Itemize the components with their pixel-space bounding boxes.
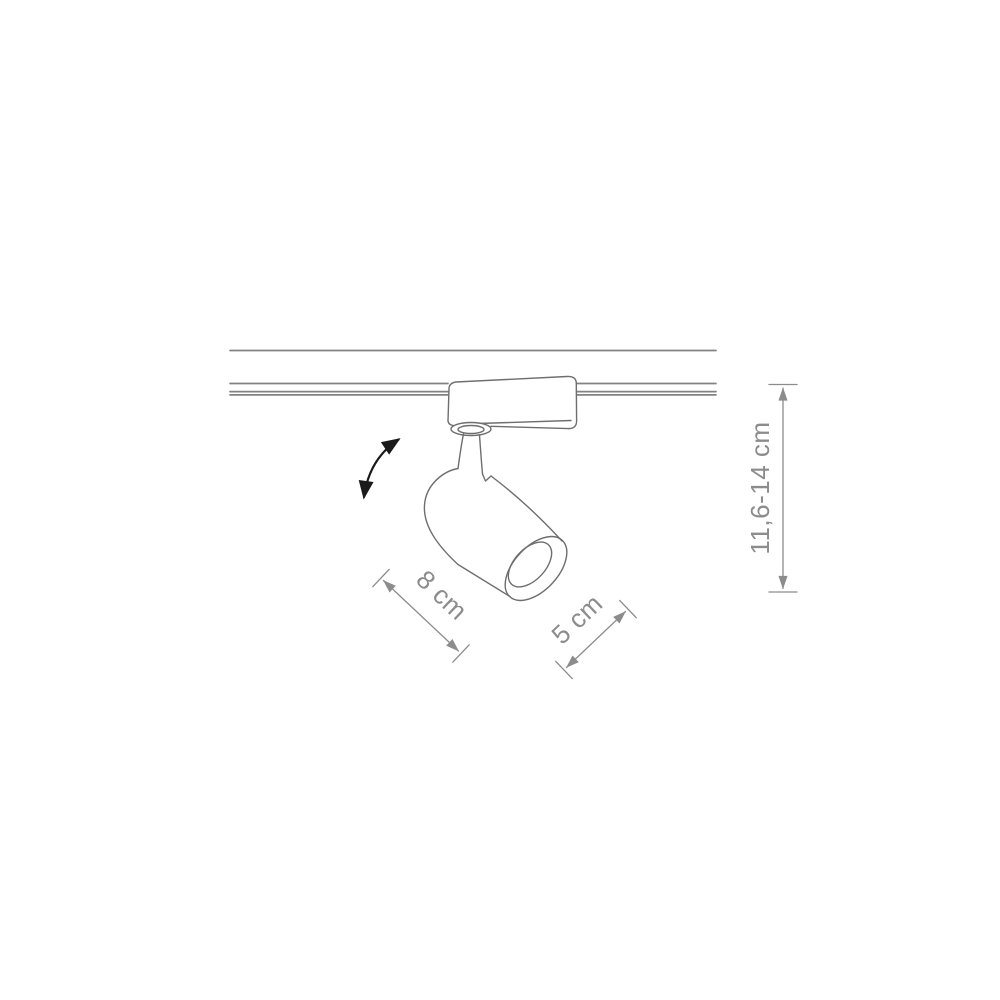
track-adapter-bottom-edge <box>478 421 571 424</box>
spotlight-fixture <box>424 376 578 611</box>
spotlight-top-edge <box>491 476 562 541</box>
dimension-labels: 8 cm 5 cm 11,6-14 cm <box>410 421 775 650</box>
dimension-drawing-canvas: 8 cm 5 cm 11,6-14 cm <box>0 0 1000 1000</box>
curved-double-arrow-icon <box>364 440 399 498</box>
tilt-adjustment-arrow-icon <box>364 440 399 498</box>
track-rail <box>230 351 716 395</box>
pivot-stem-left-edge <box>458 434 464 469</box>
dimension-annotations <box>373 385 797 679</box>
spotlight-front-rim <box>494 525 579 611</box>
dimension-length-label: 8 cm <box>410 564 473 626</box>
drawing-page: 8 cm 5 cm 11,6-14 cm <box>0 0 1000 1000</box>
pivot-stem-right-edge <box>480 435 483 474</box>
dimension-height-label: 11,6-14 cm <box>745 421 775 554</box>
stem-notch <box>483 474 492 481</box>
dimension-diameter-label: 5 cm <box>546 588 609 650</box>
